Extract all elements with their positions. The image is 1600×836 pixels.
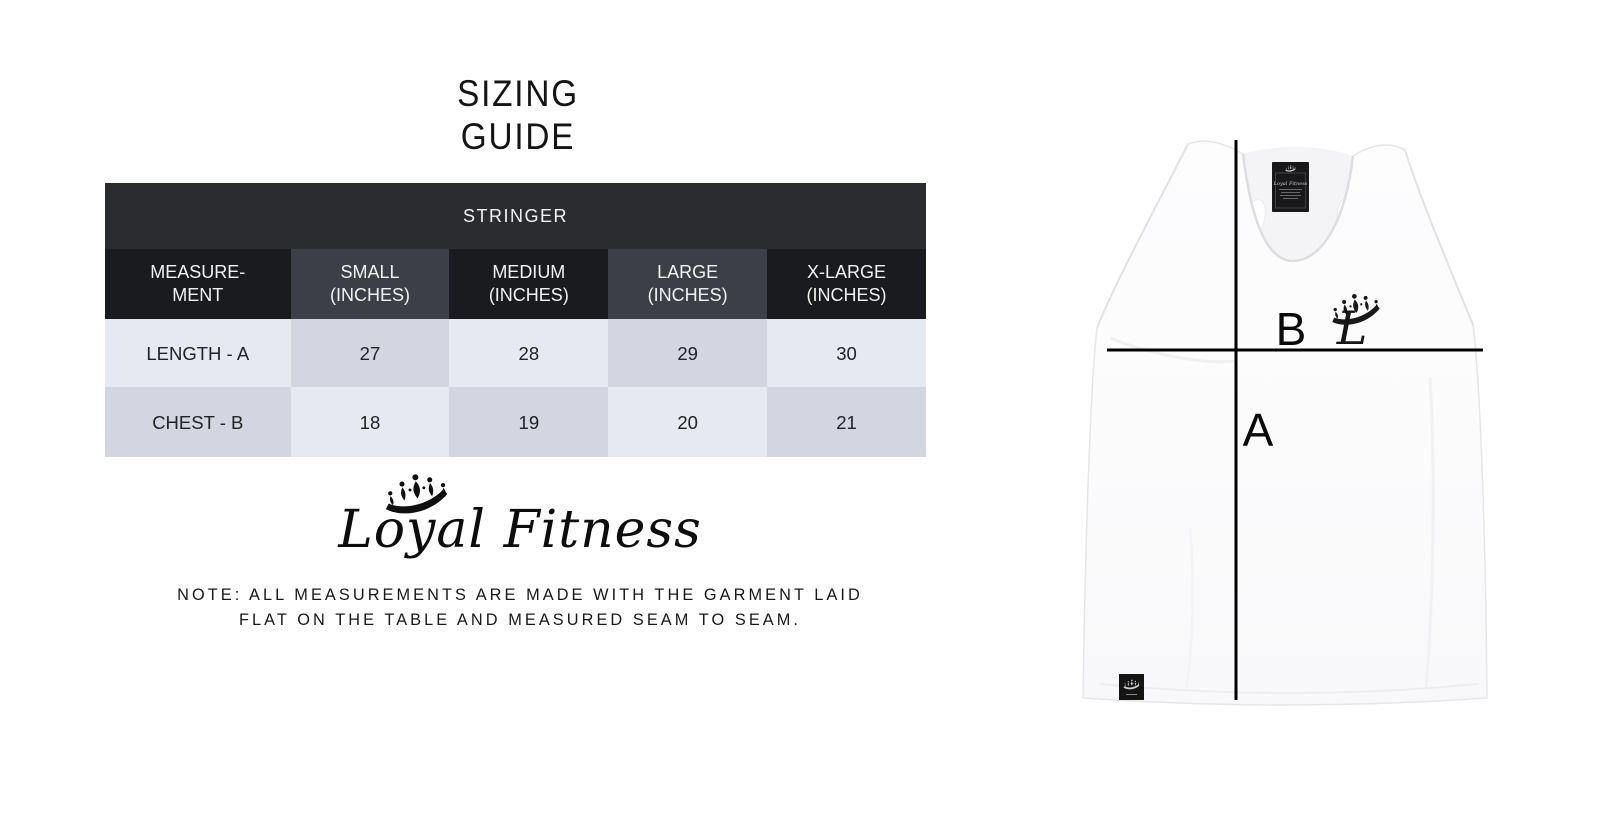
cell-value: 30: [767, 319, 926, 387]
column-header-measurement: MEASURE- MENT: [105, 249, 291, 319]
column-header-xlarge: X-LARGE (INCHES): [767, 249, 926, 319]
sizing-guide-page: SIZING GUIDE STRINGER MEASURE- MENT SMAL…: [0, 0, 1600, 836]
cell-value: 18: [291, 387, 450, 457]
cell-value: 28: [449, 319, 608, 387]
cell-value: 21: [767, 387, 926, 457]
table-category-header: STRINGER: [105, 183, 926, 249]
row-label: CHEST - B: [105, 387, 291, 457]
brand-logo: Loyal Fitness: [310, 456, 730, 586]
size-table: STRINGER MEASURE- MENT SMALL (INCHES) ME…: [105, 183, 926, 457]
column-header-medium: MEDIUM (INCHES): [449, 249, 608, 319]
hem-tag: [1119, 674, 1144, 700]
table-header-row: MEASURE- MENT SMALL (INCHES) MEDIUM (INC…: [105, 249, 926, 319]
column-header-small: SMALL (INCHES): [291, 249, 450, 319]
cell-value: 27: [291, 319, 450, 387]
chest-marker-label: B: [1276, 303, 1307, 355]
chest-logo-letter: L: [1336, 301, 1368, 355]
table-row-length: LENGTH - A 27 28 29 30: [105, 319, 926, 387]
table-row-chest: CHEST - B 18 19 20 21: [105, 387, 926, 457]
brand-name: Loyal Fitness: [310, 500, 730, 560]
measurement-note: NOTE: ALL MEASUREMENTS ARE MADE WITH THE…: [117, 582, 923, 632]
length-marker-label: A: [1243, 404, 1274, 456]
cell-value: 29: [608, 319, 767, 387]
stringer-diagram: Loyal Fitness L B A: [1040, 128, 1510, 712]
cell-value: 20: [608, 387, 767, 457]
neck-label-text: Loyal Fitness: [1273, 181, 1308, 187]
row-label: LENGTH - A: [105, 319, 291, 387]
page-title: SIZING GUIDE: [338, 72, 698, 158]
cell-value: 19: [449, 387, 608, 457]
neck-label: Loyal Fitness: [1272, 162, 1309, 212]
column-header-large: LARGE (INCHES): [608, 249, 767, 319]
